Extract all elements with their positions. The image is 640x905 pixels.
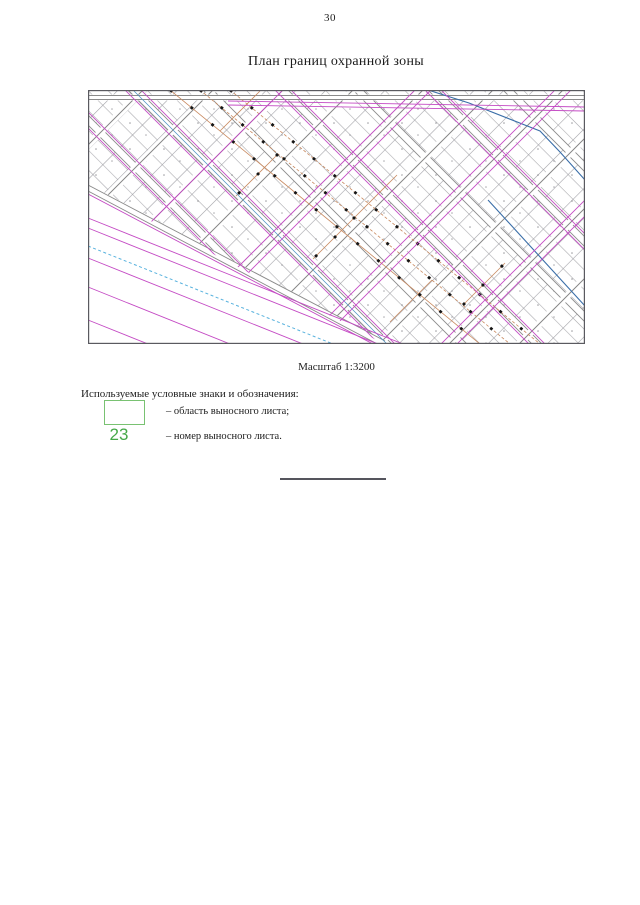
signature-rule-line bbox=[280, 478, 386, 480]
callout-area-symbol bbox=[104, 400, 145, 425]
map-drawing bbox=[88, 90, 585, 344]
cadastral-map bbox=[88, 90, 585, 344]
page-title: План границ охранной зоны bbox=[0, 54, 640, 70]
map-scale-caption: Масштаб 1:3200 bbox=[88, 361, 585, 373]
legend-item-label: – область выносного листа; bbox=[166, 406, 289, 417]
legend-heading: Используемые условные знаки и обозначени… bbox=[81, 388, 299, 400]
document-page: { "page": { "number": "30", "title": "Пл… bbox=[0, 0, 640, 905]
page-number: 30 bbox=[0, 12, 640, 24]
legend-item-label: – номер выносного листа. bbox=[166, 431, 282, 442]
callout-sheet-number-symbol: 23 bbox=[98, 425, 140, 445]
